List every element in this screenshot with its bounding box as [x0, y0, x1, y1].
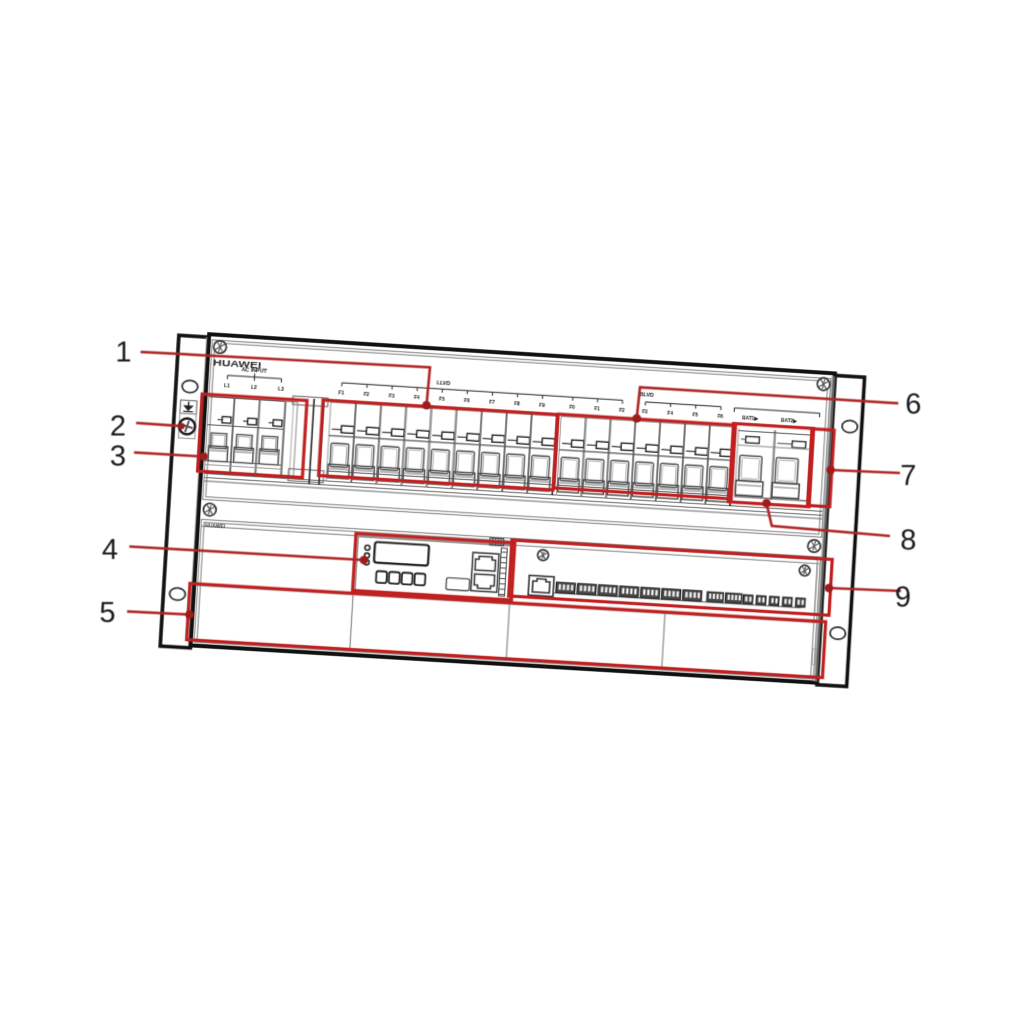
svg-text:5: 5: [99, 597, 115, 629]
svg-text:1: 1: [115, 336, 131, 368]
svg-text:3: 3: [110, 440, 126, 472]
svg-text:6: 6: [905, 389, 921, 421]
svg-text:9: 9: [895, 582, 911, 614]
svg-text:2: 2: [110, 410, 126, 442]
svg-text:4: 4: [102, 534, 118, 566]
svg-text:8: 8: [900, 525, 916, 557]
svg-text:7: 7: [900, 460, 916, 492]
